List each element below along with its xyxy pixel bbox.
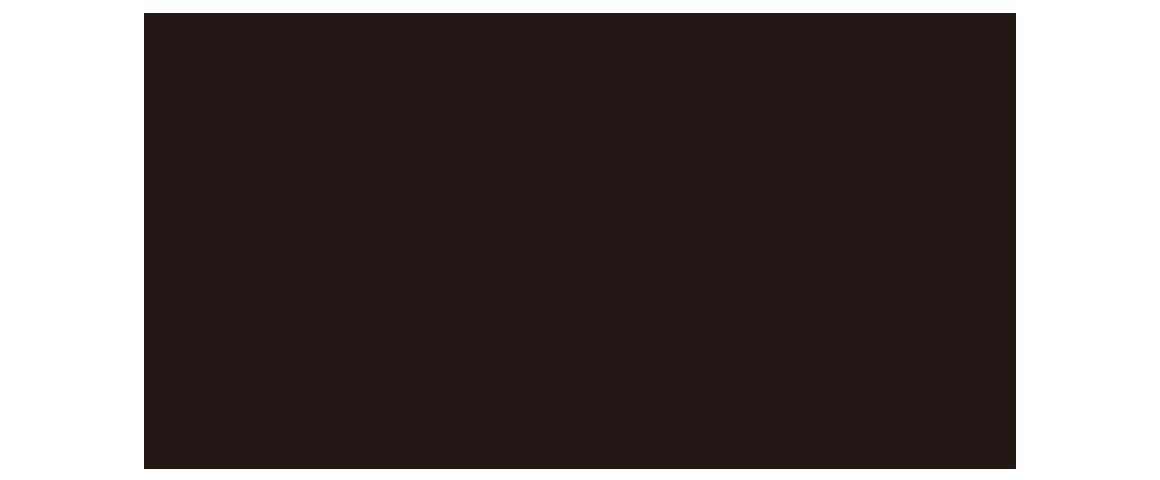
page-background bbox=[0, 0, 1160, 480]
blank-dark-panel bbox=[144, 13, 1016, 469]
